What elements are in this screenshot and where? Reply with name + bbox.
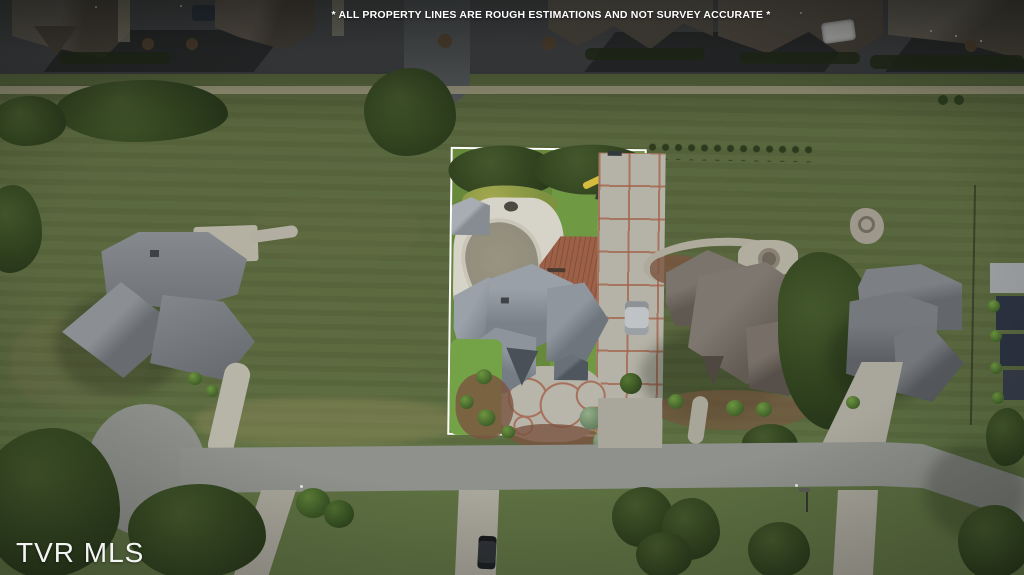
vignette-overlay [0,0,1024,575]
aerial-photo: * ALL PROPERTY LINES ARE ROUGH ESTIMATIO… [0,0,1024,575]
disclaimer-text: * ALL PROPERTY LINES ARE ROUGH ESTIMATIO… [331,9,770,21]
mls-watermark: TVR MLS [16,537,144,569]
